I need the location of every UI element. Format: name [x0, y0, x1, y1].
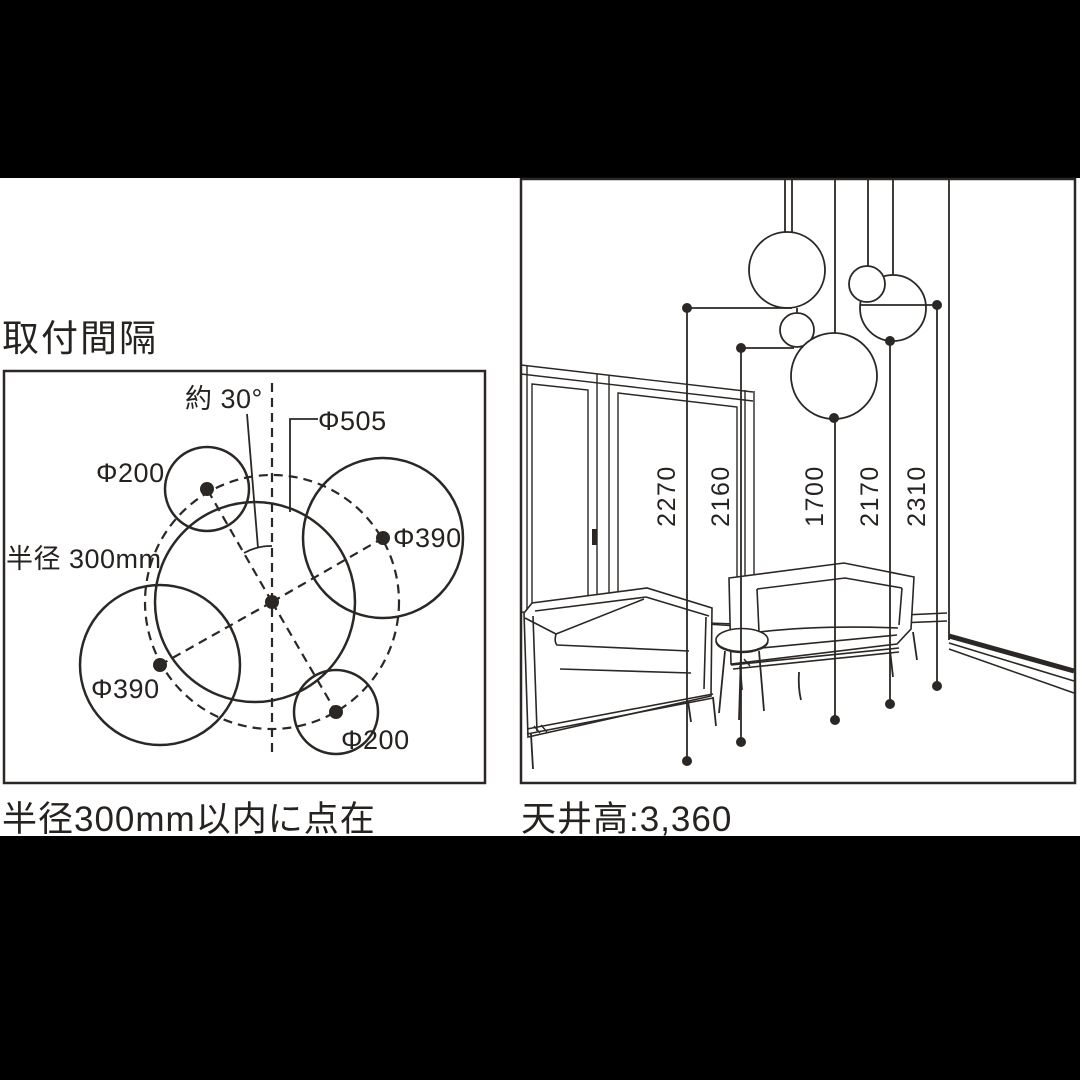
spec-drawing: 取付間隔 — [0, 0, 1080, 1080]
dia390-right-label: Φ390 — [393, 523, 462, 553]
dim-label-2270: 2270 — [653, 465, 681, 527]
angle-label: 約 30° — [185, 384, 263, 414]
window-handle — [592, 529, 597, 545]
dim-label-1700: 1700 — [801, 465, 829, 527]
dia505-label: Φ505 — [318, 406, 387, 436]
pendant-sphere-large-2 — [791, 333, 877, 419]
dim-label-2160: 2160 — [707, 465, 735, 527]
dim-label-2170: 2170 — [856, 465, 884, 527]
left-panel-title: 取付間隔 — [2, 318, 158, 359]
pendant-sphere-small-2 — [849, 266, 885, 302]
pendant-sphere-large-1 — [749, 232, 825, 308]
dia200-top-label: Φ200 — [96, 458, 165, 488]
dim-label-2310: 2310 — [903, 465, 931, 527]
catalog-spec-image: 取付間隔 — [0, 0, 1080, 1080]
left-panel-caption: 半径300mm以内に点在 — [2, 800, 376, 839]
right-panel-caption: 天井高:3,360 — [521, 800, 732, 839]
dia200-bottom-label: Φ200 — [341, 725, 410, 755]
table-top — [716, 629, 768, 652]
dia390-left-label: Φ390 — [91, 674, 160, 704]
radius-label: 半径 300mm — [6, 544, 162, 574]
